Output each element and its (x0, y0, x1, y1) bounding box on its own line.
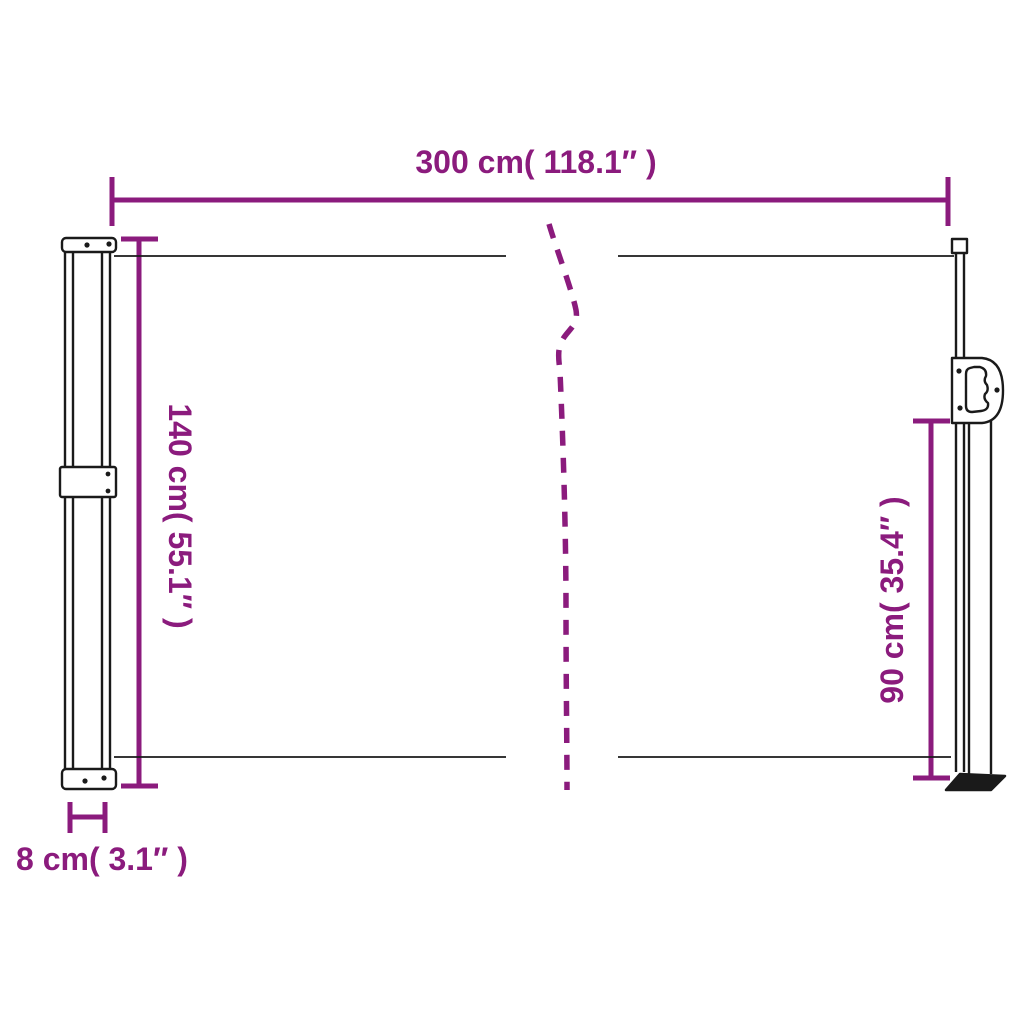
pole-top-cap (952, 239, 967, 253)
left-height-dimension (121, 239, 158, 786)
screw-icon (84, 242, 89, 247)
screw-icon (101, 775, 106, 780)
right-height-dimension (913, 421, 950, 778)
pole-tube (965, 421, 991, 774)
depth-dimension-label: 8 cm( 3.1″ ) (16, 843, 188, 875)
screw-icon (106, 241, 111, 246)
fabric-edge-lines (114, 256, 954, 757)
right-height-dimension-label: 90 cm( 35.4″ ) (876, 496, 908, 703)
depth-dimension-bracket (70, 802, 105, 833)
screw-icon (994, 387, 999, 392)
screw-icon (957, 405, 962, 410)
top-width-dimension (112, 177, 948, 226)
screw-icon (82, 778, 87, 783)
break-line (549, 224, 576, 790)
screw-icon (106, 472, 111, 477)
pole-base-foot (946, 774, 1005, 790)
screw-icon (106, 489, 111, 494)
left-height-dimension-label: 140 cm( 55.1″ ) (164, 403, 196, 628)
screw-icon (956, 368, 961, 373)
roller-pole-drawing (946, 239, 1005, 790)
cassette-post-drawing (60, 238, 116, 789)
width-dimension-label: 300 cm( 118.1″ ) (415, 146, 656, 178)
cassette-bottom-cap (62, 769, 116, 789)
handle-grip-cutout (966, 367, 988, 412)
diagram-canvas: 300 cm( 118.1″ ) 140 cm( 55.1″ ) 90 cm( … (0, 0, 1024, 1024)
